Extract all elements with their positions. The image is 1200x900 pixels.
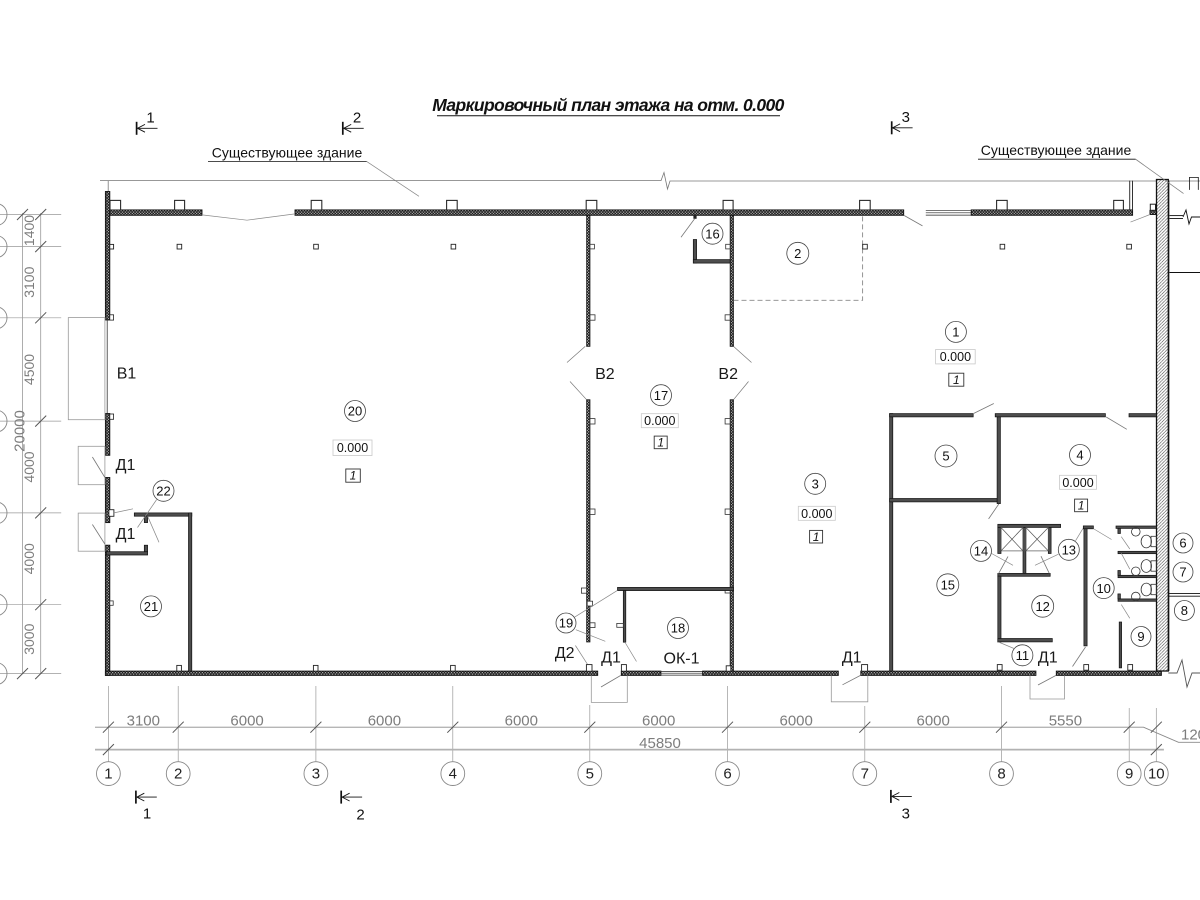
- svg-text:5: 5: [586, 766, 594, 783]
- svg-text:1: 1: [350, 469, 357, 483]
- svg-text:1: 1: [104, 766, 112, 783]
- svg-text:8: 8: [997, 766, 1005, 783]
- svg-text:10: 10: [1096, 581, 1110, 596]
- svg-text:0.000: 0.000: [1062, 476, 1093, 490]
- svg-text:Д1: Д1: [1038, 649, 1058, 666]
- svg-text:15: 15: [941, 578, 955, 593]
- svg-text:5550: 5550: [1049, 712, 1082, 729]
- svg-text:0.000: 0.000: [644, 414, 675, 428]
- svg-text:17: 17: [654, 388, 668, 403]
- svg-text:В2: В2: [718, 366, 738, 383]
- svg-text:3100: 3100: [127, 712, 160, 729]
- svg-text:4000: 4000: [21, 451, 37, 482]
- svg-text:9: 9: [1125, 766, 1133, 783]
- svg-text:1: 1: [657, 436, 664, 450]
- svg-text:2: 2: [353, 110, 361, 127]
- svg-text:Д1: Д1: [601, 649, 621, 666]
- svg-text:3: 3: [902, 109, 910, 126]
- svg-text:3: 3: [902, 806, 910, 823]
- svg-text:18: 18: [671, 621, 685, 636]
- svg-text:3100: 3100: [21, 266, 37, 297]
- svg-text:5: 5: [942, 449, 949, 464]
- svg-text:45850: 45850: [639, 735, 681, 752]
- svg-text:6000: 6000: [368, 712, 401, 729]
- svg-text:1: 1: [1078, 499, 1085, 513]
- svg-text:1: 1: [146, 110, 154, 127]
- svg-text:Существующее здание: Существующее здание: [212, 145, 363, 161]
- svg-text:Д1: Д1: [116, 526, 136, 543]
- svg-text:6: 6: [1179, 536, 1186, 551]
- svg-text:7: 7: [861, 766, 869, 783]
- svg-text:22: 22: [156, 484, 170, 499]
- svg-text:4: 4: [1076, 448, 1083, 463]
- svg-text:3: 3: [812, 477, 819, 492]
- svg-text:16: 16: [705, 226, 719, 241]
- svg-text:4: 4: [449, 766, 457, 783]
- svg-text:4500: 4500: [21, 354, 37, 385]
- svg-text:13: 13: [1062, 543, 1076, 558]
- svg-text:7: 7: [1179, 565, 1186, 580]
- svg-text:4000: 4000: [21, 543, 37, 574]
- svg-text:3000: 3000: [21, 623, 37, 654]
- svg-text:20: 20: [348, 404, 362, 419]
- svg-text:21: 21: [144, 599, 158, 614]
- svg-text:0.000: 0.000: [801, 507, 832, 521]
- svg-text:Д1: Д1: [116, 457, 136, 474]
- svg-text:2: 2: [794, 246, 801, 261]
- svg-text:6: 6: [723, 766, 731, 783]
- svg-text:6000: 6000: [230, 712, 263, 729]
- svg-text:2: 2: [174, 766, 182, 783]
- svg-text:Д1: Д1: [842, 649, 862, 666]
- svg-text:14: 14: [974, 544, 988, 559]
- svg-text:ОК-1: ОК-1: [664, 651, 700, 668]
- svg-text:19: 19: [559, 616, 573, 631]
- svg-text:20000: 20000: [12, 410, 29, 452]
- svg-text:1200: 1200: [1181, 727, 1200, 744]
- svg-text:10: 10: [1148, 766, 1165, 783]
- svg-text:1400: 1400: [21, 215, 37, 246]
- svg-text:В1: В1: [117, 366, 137, 383]
- svg-text:12: 12: [1035, 599, 1049, 614]
- svg-text:В2: В2: [595, 366, 615, 383]
- svg-text:6000: 6000: [642, 712, 675, 729]
- svg-text:6000: 6000: [505, 712, 538, 729]
- svg-text:1: 1: [952, 325, 959, 340]
- svg-text:1: 1: [953, 373, 960, 387]
- svg-text:6000: 6000: [780, 712, 813, 729]
- svg-text:Существующее здание: Существующее здание: [981, 142, 1132, 158]
- svg-text:Маркировочный план этажа на от: Маркировочный план этажа на отм. 0.000: [432, 95, 784, 115]
- svg-text:0.000: 0.000: [940, 350, 971, 364]
- svg-text:11: 11: [1016, 648, 1030, 663]
- svg-text:1: 1: [813, 530, 820, 544]
- svg-text:9: 9: [1137, 629, 1144, 644]
- svg-text:1: 1: [143, 806, 151, 823]
- svg-text:0.000: 0.000: [337, 441, 368, 455]
- svg-text:6000: 6000: [917, 712, 950, 729]
- svg-text:Д2: Д2: [555, 645, 575, 662]
- svg-text:2: 2: [356, 807, 364, 824]
- svg-text:3: 3: [312, 766, 320, 783]
- svg-text:8: 8: [1181, 603, 1188, 618]
